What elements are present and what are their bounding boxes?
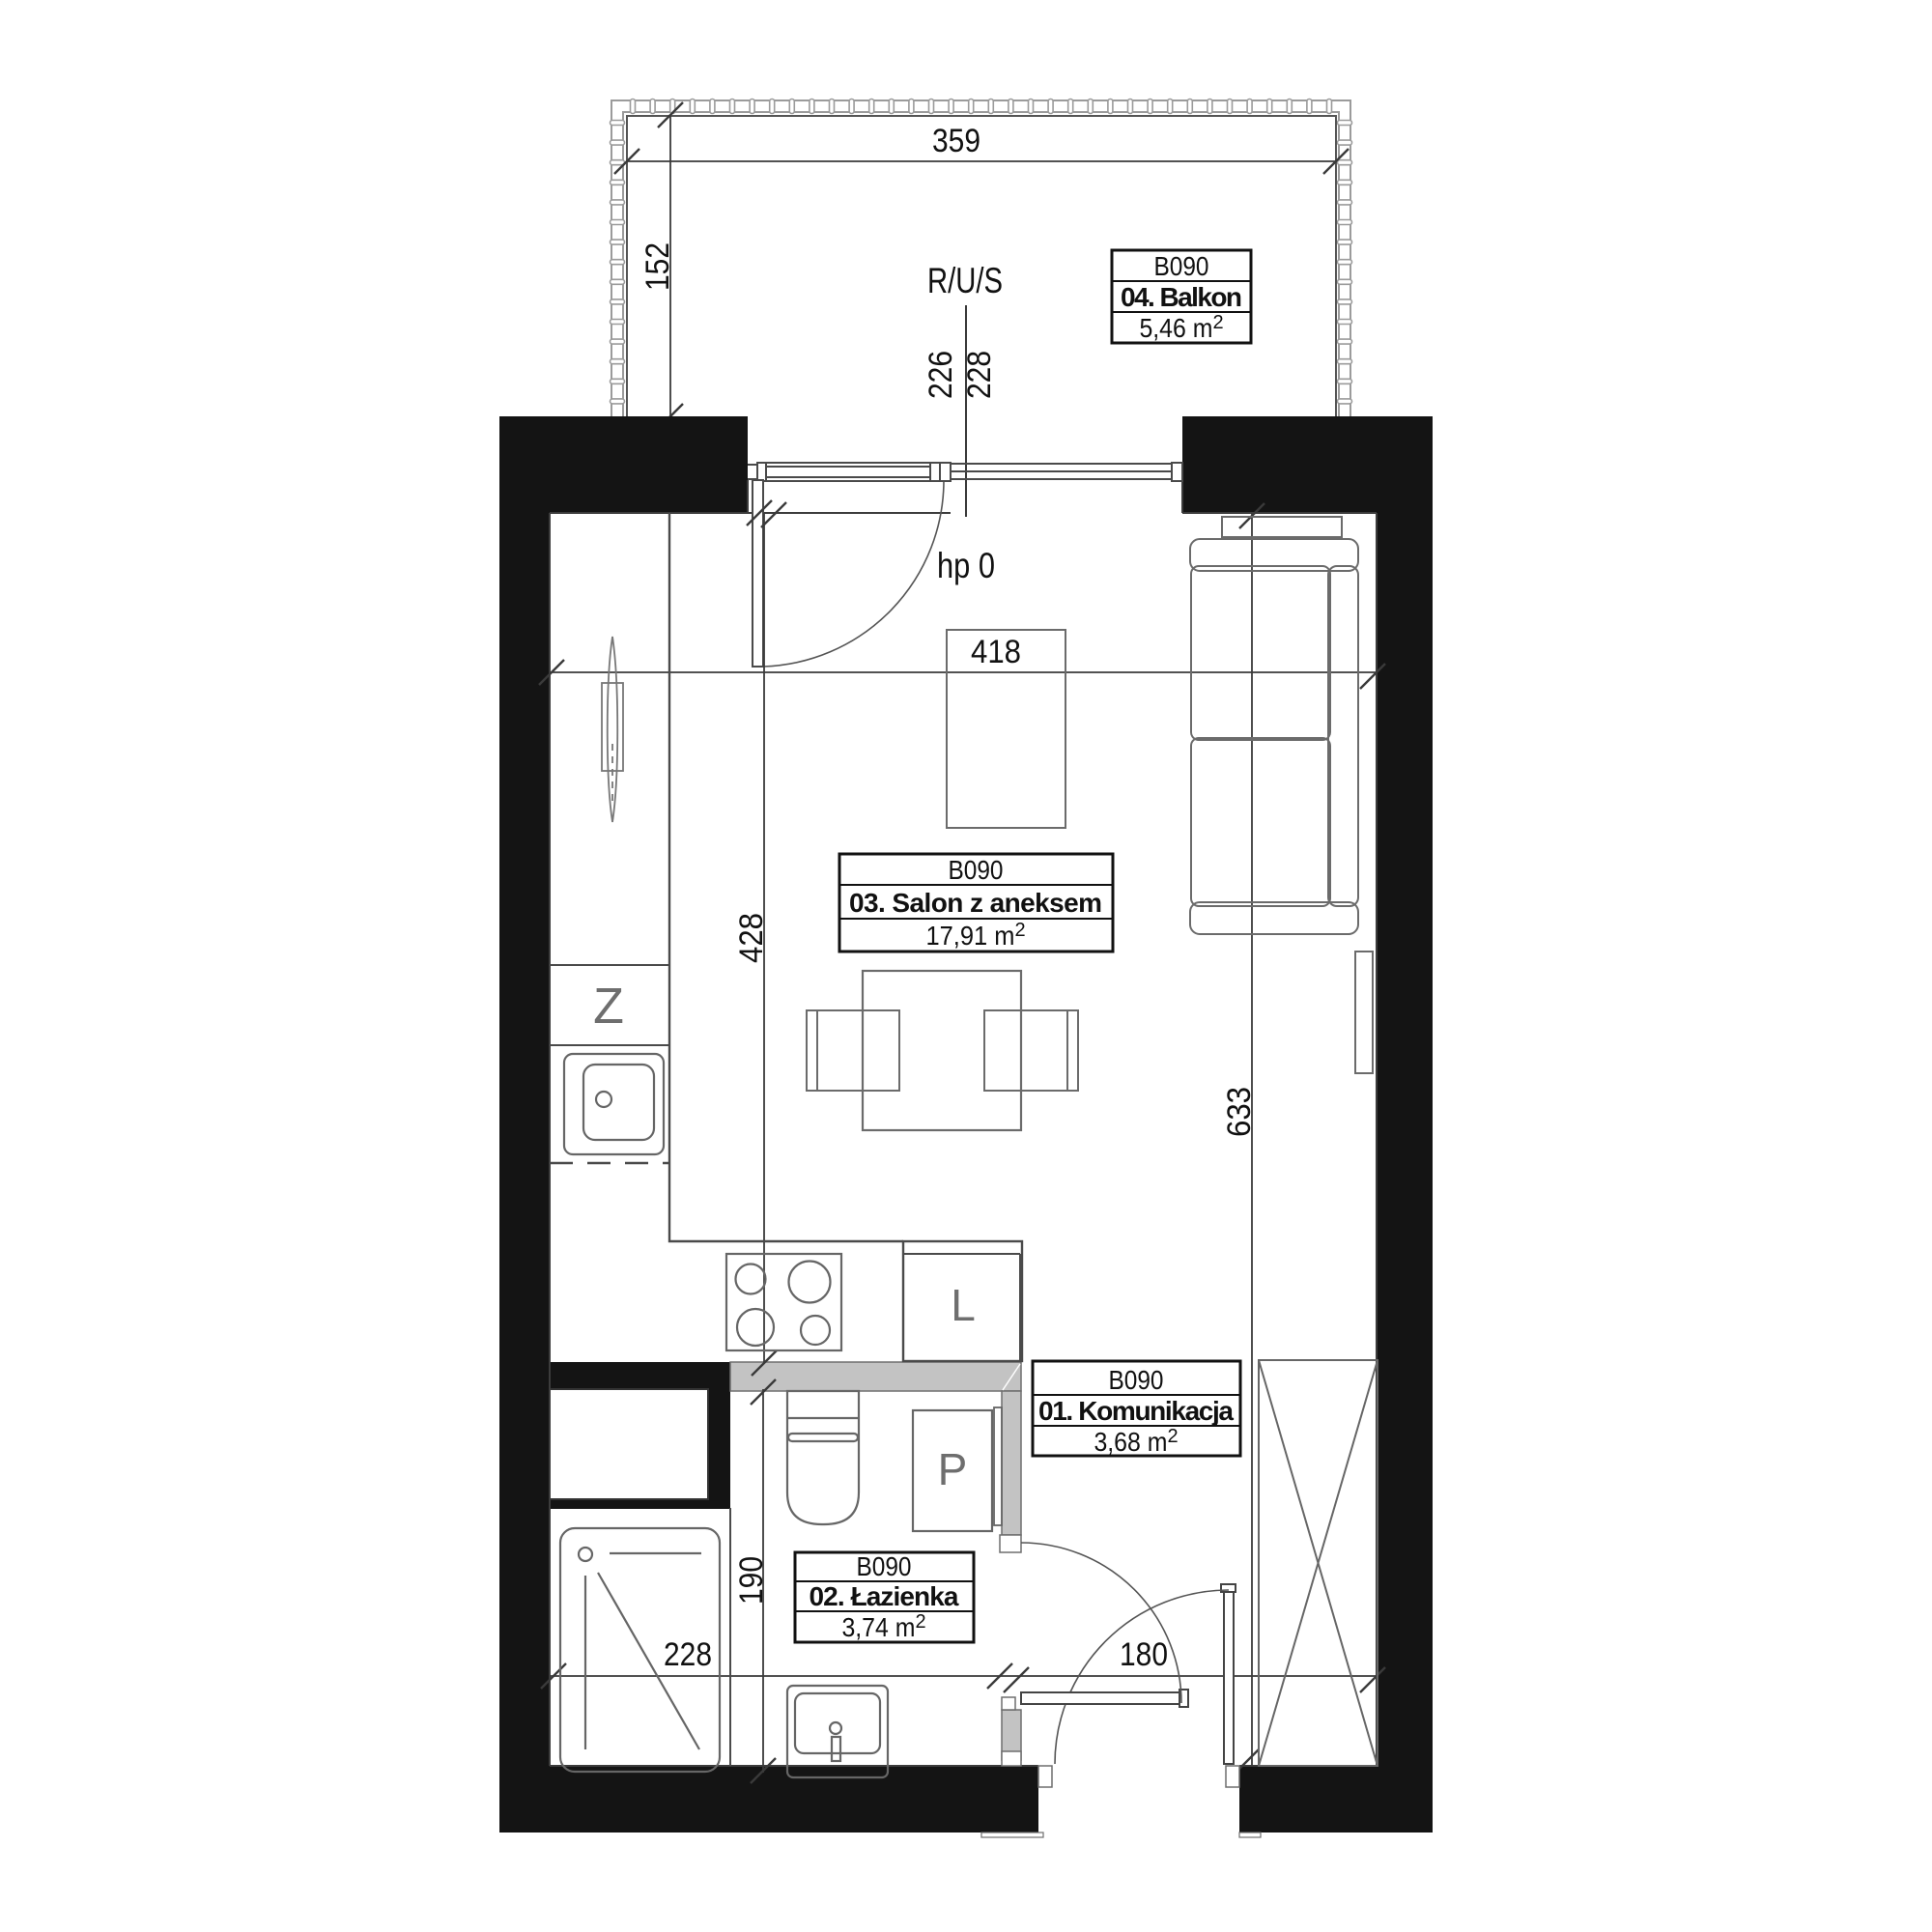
svg-text:B090: B090 [1154,251,1209,281]
svg-text:B090: B090 [1109,1365,1164,1395]
svg-text:180: 180 [1120,1636,1168,1673]
svg-text:Z: Z [593,979,624,1035]
svg-text:428: 428 [733,913,770,963]
svg-text:152: 152 [639,242,676,291]
svg-text:226: 226 [923,351,959,399]
svg-text:hp 0: hp 0 [937,546,995,585]
svg-text:B090: B090 [949,855,1004,885]
svg-text:02. Łazienka: 02. Łazienka [810,1581,959,1611]
svg-text:L: L [951,1280,976,1330]
svg-text:3,68 m2: 3,68 m2 [1094,1426,1178,1457]
svg-text:03. Salon z aneksem: 03. Salon z aneksem [849,888,1102,918]
svg-text:190: 190 [733,1556,770,1605]
svg-text:5,46 m2: 5,46 m2 [1139,312,1223,343]
svg-text:17,91 m2: 17,91 m2 [925,920,1025,951]
svg-text:418: 418 [971,634,1021,670]
svg-text:3,74 m2: 3,74 m2 [841,1611,925,1642]
svg-text:B090: B090 [857,1551,912,1581]
svg-text:359: 359 [932,123,980,159]
svg-text:228: 228 [961,351,998,399]
svg-text:01. Komunikacja: 01. Komunikacja [1038,1396,1234,1426]
svg-text:633: 633 [1221,1087,1258,1137]
svg-text:04. Balkon: 04. Balkon [1121,282,1242,312]
svg-text:228: 228 [664,1636,712,1673]
svg-text:P: P [938,1444,968,1494]
svg-text:R/U/S: R/U/S [927,261,1003,300]
